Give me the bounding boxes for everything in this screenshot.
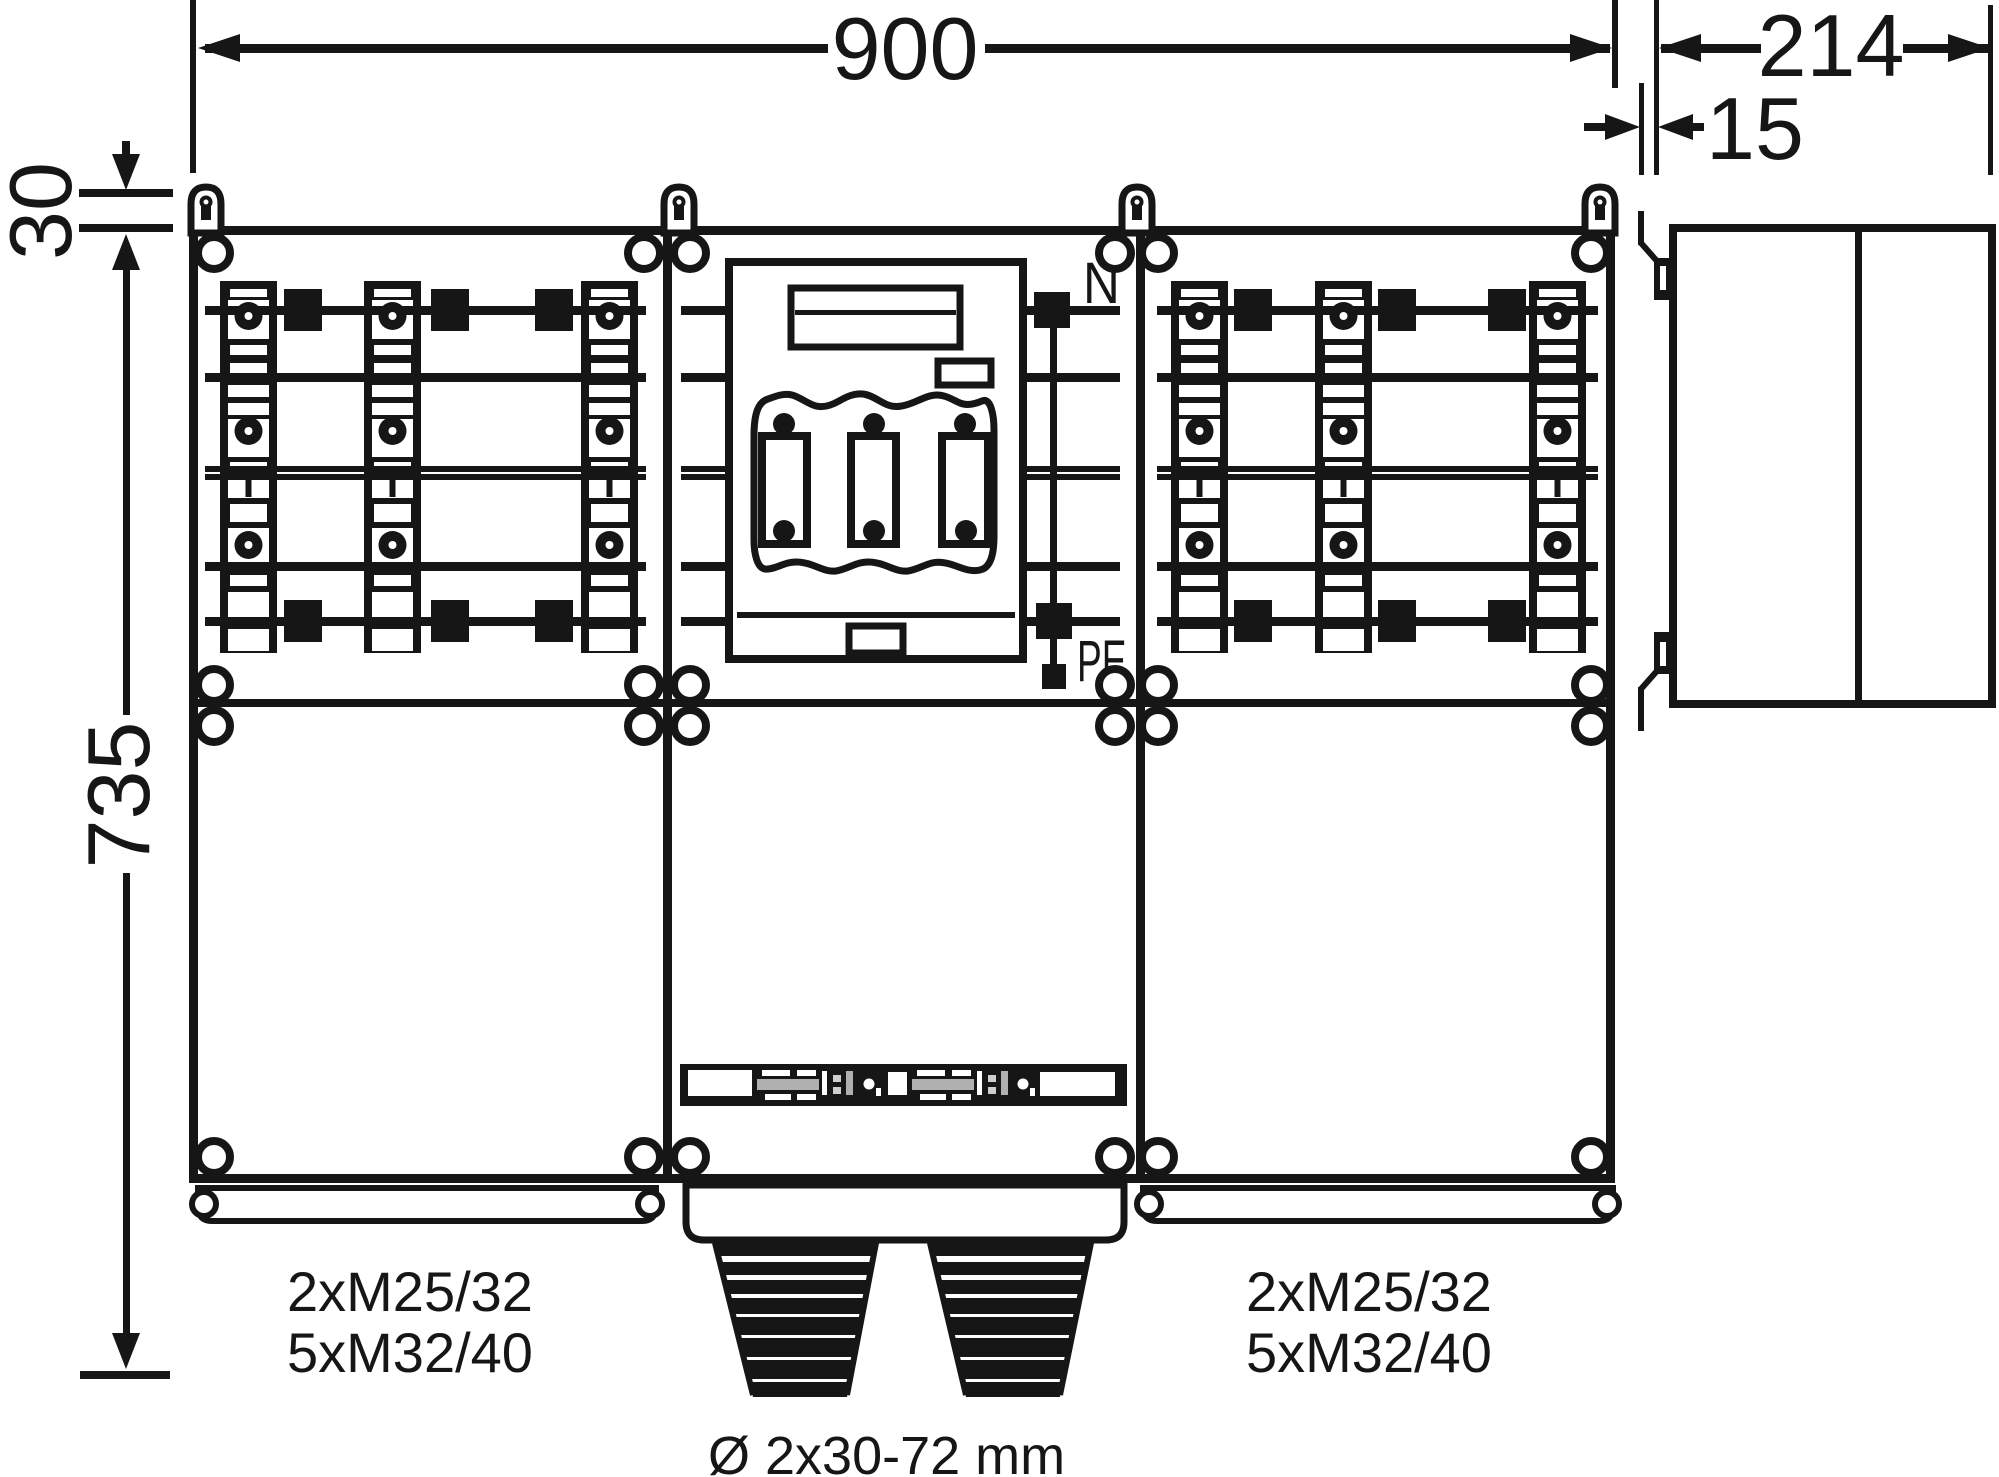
svg-text:2xM25/32: 2xM25/32 — [1246, 1260, 1492, 1323]
svg-text:5xM32/40: 5xM32/40 — [287, 1321, 533, 1384]
svg-text:735: 735 — [69, 722, 168, 869]
svg-text:30: 30 — [0, 162, 90, 260]
svg-text:900: 900 — [832, 0, 979, 98]
svg-text:5xM32/40: 5xM32/40 — [1246, 1321, 1492, 1384]
svg-text:Ø 2x30-72 mm: Ø 2x30-72 mm — [708, 1426, 1065, 1477]
svg-text:2xM25/32: 2xM25/32 — [287, 1260, 533, 1323]
svg-text:15: 15 — [1706, 79, 1804, 178]
